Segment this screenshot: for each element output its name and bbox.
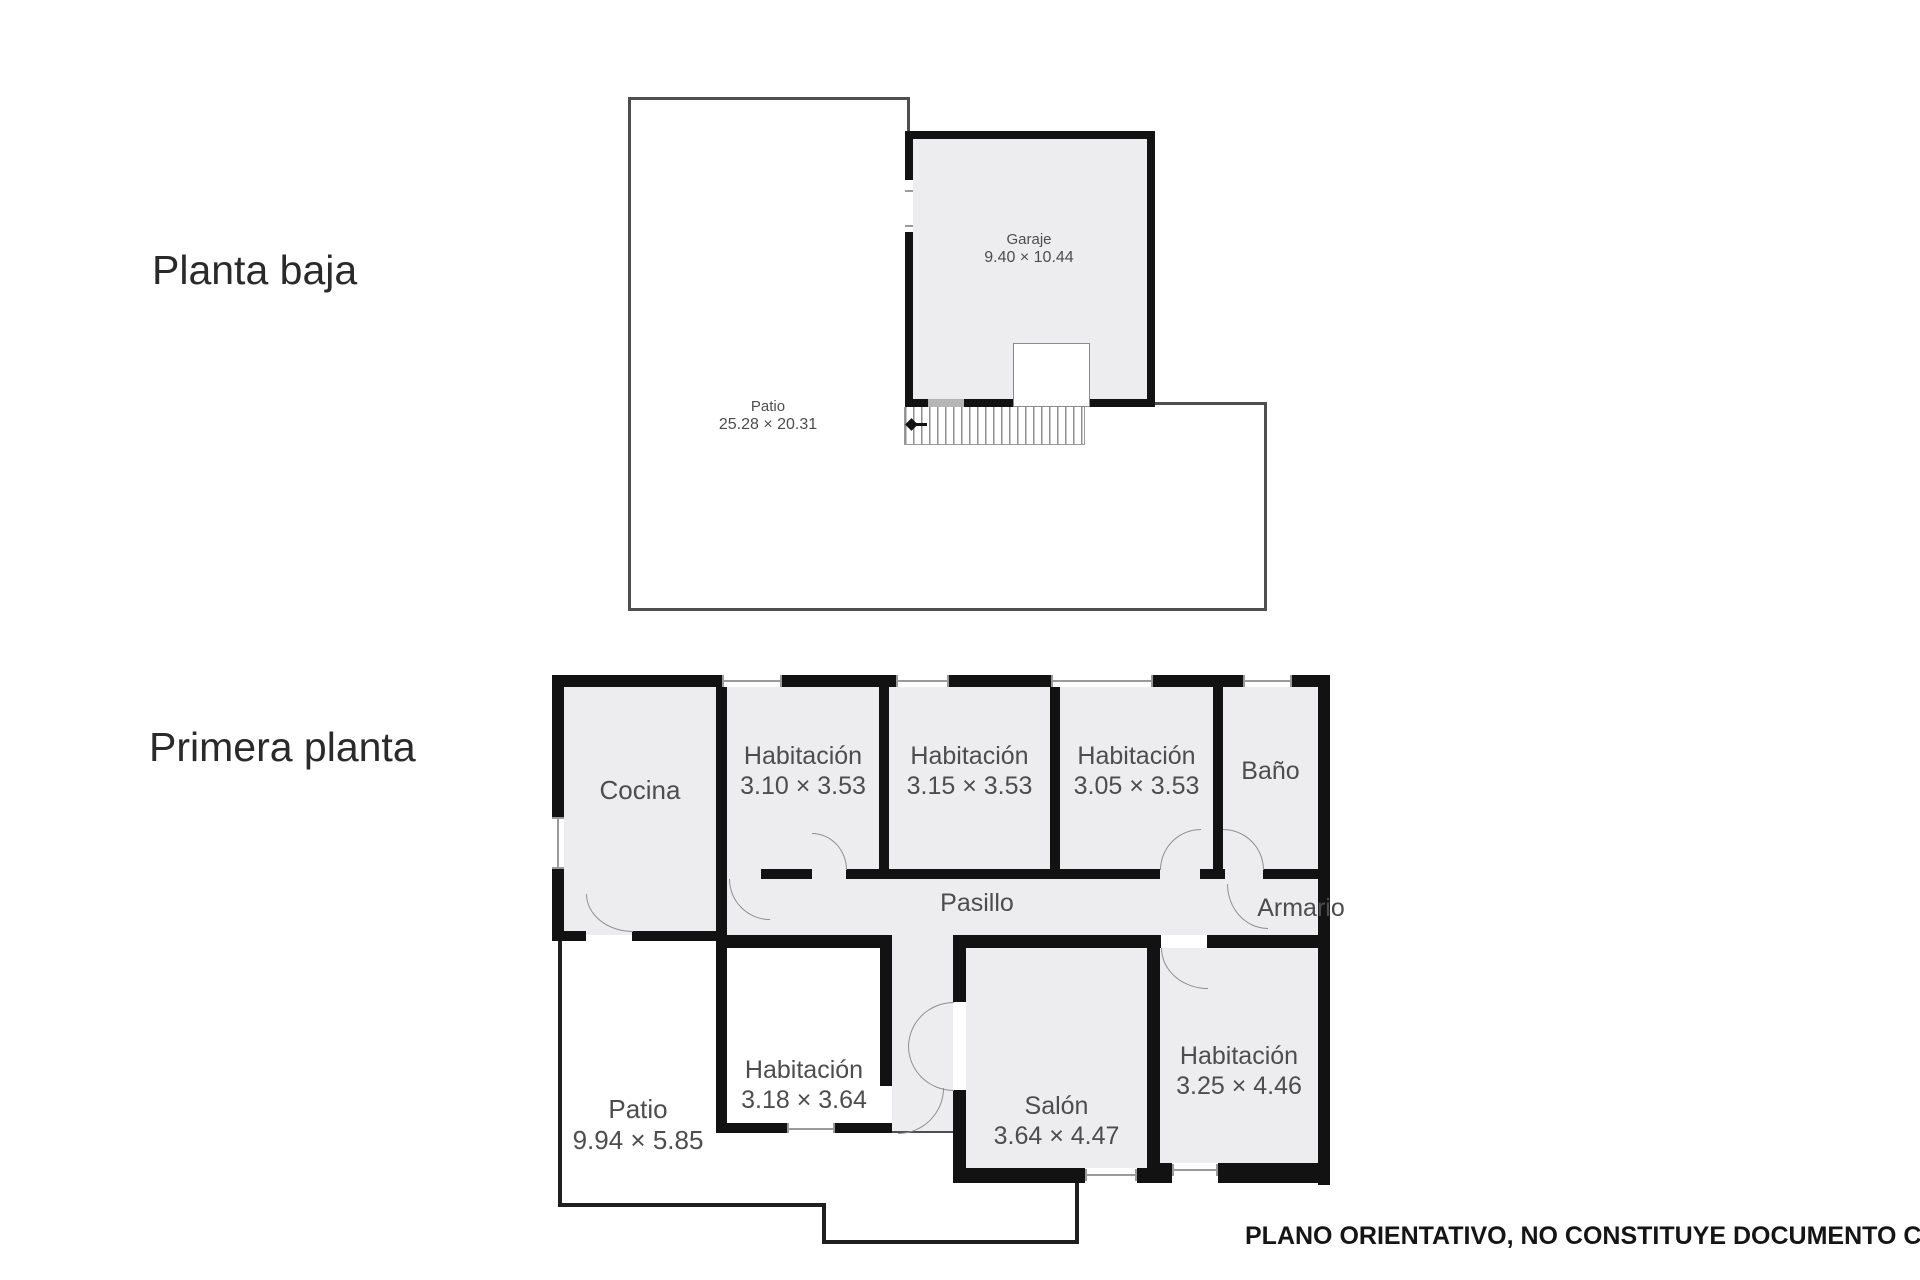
garage-landing	[1013, 343, 1090, 407]
room-label-salon: Salón 3.64 × 4.47	[966, 1092, 1147, 1151]
stairs	[904, 407, 1085, 445]
room-label-pasillo: Pasillo	[877, 889, 1077, 919]
room-label-cocina: Cocina	[564, 775, 716, 806]
room-label-hab3: Habitación 3.05 × 3.53	[1060, 742, 1213, 801]
wall	[907, 97, 910, 133]
wall	[1147, 948, 1160, 1183]
window	[1172, 1164, 1218, 1176]
wall	[1318, 687, 1330, 1185]
wall	[628, 97, 631, 611]
room-dims: 3.18 × 3.64	[716, 1086, 892, 1116]
door-opening	[905, 190, 913, 192]
wall	[716, 935, 892, 948]
wall	[716, 1123, 787, 1133]
floor-plan-page: Planta baja Garaje 9.40 × 10.44 Patio 25	[0, 0, 1920, 1280]
patio-outline	[822, 1203, 826, 1244]
wall	[953, 948, 966, 1002]
room-name: Habitación	[889, 742, 1050, 772]
room-dims: 3.05 × 3.53	[1060, 772, 1213, 802]
room-name: Habitación	[1160, 1042, 1318, 1072]
stairs-arrow-icon	[915, 423, 927, 426]
disclaimer-text: PLANO ORIENTATIVO, NO CONSTITUYE DOCUMEN…	[1245, 1222, 1920, 1251]
room-dims: 3.10 × 3.53	[727, 772, 879, 802]
patio-outline	[822, 1240, 1079, 1244]
wall	[628, 97, 910, 100]
room-dims: 9.94 × 5.85	[560, 1125, 716, 1156]
room-label-armario: Armario	[1246, 894, 1356, 924]
room-name: Armario	[1246, 894, 1356, 924]
door-opening	[928, 399, 964, 407]
room-name: Habitación	[716, 1056, 892, 1086]
first-floor-title: Primera planta	[149, 724, 416, 771]
room-dims: 3.15 × 3.53	[889, 772, 1050, 802]
wall	[1263, 869, 1318, 879]
wall	[1150, 402, 1267, 405]
room-label-bano: Baño	[1223, 757, 1318, 787]
room-label-hab4: Habitación 3.18 × 3.64	[716, 1056, 892, 1115]
room-dims: 9.40 × 10.44	[969, 249, 1089, 268]
room-dims: 3.25 × 4.46	[1160, 1072, 1318, 1102]
room-name: Patio	[560, 1094, 716, 1125]
room-name: Habitación	[727, 742, 879, 772]
wall	[1213, 687, 1223, 869]
patio-outline	[558, 941, 562, 1207]
room-label-garaje: Garaje 9.40 × 10.44	[969, 231, 1089, 268]
window	[1243, 675, 1292, 687]
room-dims: 25.28 × 20.31	[708, 416, 828, 435]
room-name: Garaje	[969, 231, 1089, 249]
wall	[879, 687, 889, 869]
wall	[1137, 1168, 1160, 1183]
wall	[628, 608, 1267, 611]
wall	[1207, 935, 1318, 948]
room-name: Habitación	[1060, 742, 1213, 772]
window	[1051, 675, 1153, 687]
room-name: Cocina	[564, 775, 716, 806]
wall	[835, 1123, 892, 1133]
room-label-patio-pb: Patio 25.28 × 20.31	[708, 398, 828, 435]
wall	[1200, 869, 1225, 879]
window	[552, 817, 564, 869]
wall	[761, 869, 812, 879]
wall	[846, 869, 1160, 879]
wall	[1160, 1163, 1172, 1183]
room-label-hab2: Habitación 3.15 × 3.53	[889, 742, 1050, 801]
window	[1085, 1169, 1137, 1181]
patio-outline	[1075, 1183, 1079, 1244]
wall	[1050, 687, 1060, 869]
door-opening	[905, 225, 913, 227]
room-name: Salón	[966, 1092, 1147, 1122]
window	[896, 675, 949, 687]
wall	[1264, 402, 1267, 611]
patio-outline	[558, 1203, 826, 1207]
room-name: Pasillo	[877, 889, 1077, 919]
wall	[953, 935, 1161, 948]
wall	[632, 931, 716, 941]
wall	[953, 1168, 1085, 1183]
window	[787, 1123, 835, 1133]
room-name: Baño	[1223, 757, 1318, 787]
room-name: Patio	[708, 398, 828, 416]
wall	[1218, 1163, 1330, 1183]
room-dims: 3.64 × 4.47	[966, 1122, 1147, 1152]
window	[722, 675, 782, 687]
room-label-hab5: Habitación 3.25 × 4.46	[1160, 1042, 1318, 1101]
room-label-patio-p1: Patio 9.94 × 5.85	[560, 1094, 716, 1155]
ground-floor-title: Planta baja	[152, 247, 357, 294]
room-label-hab1: Habitación 3.10 × 3.53	[727, 742, 879, 801]
wall	[552, 687, 564, 817]
wall	[552, 931, 586, 941]
